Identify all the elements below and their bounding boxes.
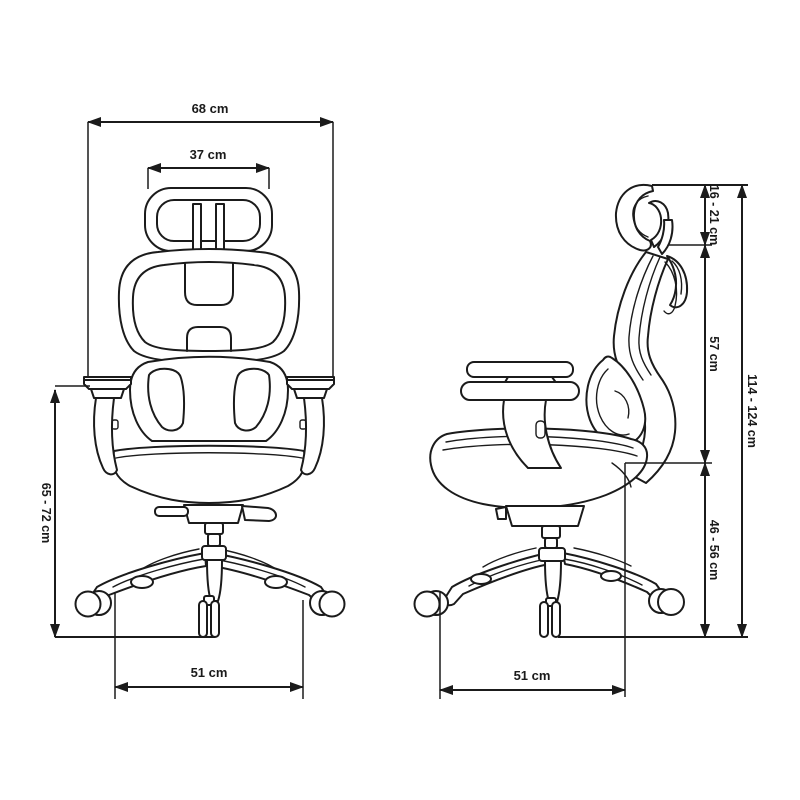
- base-leg-left: [445, 553, 549, 605]
- leg-foot-left: [471, 574, 491, 584]
- chair-dimension-diagram: 68 cm 37 cm 65 - 72 cm 51 cm 16 - 21 cm …: [0, 0, 800, 800]
- gas-cylinder-lower: [208, 534, 220, 546]
- label-backrest-height: 57 cm: [707, 336, 721, 371]
- headrest-outline: [616, 185, 653, 251]
- headrest-front: [145, 188, 272, 252]
- base-side: [415, 548, 685, 637]
- base-front: [76, 546, 345, 637]
- base-hub: [202, 546, 226, 560]
- adjust-lever-right: [242, 506, 276, 521]
- headrest-side: [616, 185, 673, 254]
- leg-foot-right: [601, 571, 621, 581]
- armrest-pad-base: [91, 389, 124, 398]
- front-caster-wheel: [552, 602, 560, 637]
- headrest-rail: [667, 256, 687, 307]
- label-front-base-width: 51 cm: [191, 665, 228, 680]
- leg-foot-left: [131, 576, 153, 588]
- front-caster-wheel: [211, 601, 219, 637]
- base-hub: [539, 548, 565, 561]
- armrest-pad: [84, 377, 131, 389]
- label-headrest-adjust-range: 16 - 21 cm: [707, 185, 721, 245]
- front-caster-wheel: [540, 602, 548, 637]
- headrest-strut: [216, 204, 224, 252]
- armrest-column: [301, 398, 324, 474]
- mechanism-front: [155, 505, 276, 546]
- label-side-base-depth: 51 cm: [514, 668, 551, 683]
- gas-cylinder: [205, 523, 223, 534]
- armrest-column: [94, 398, 117, 474]
- cylinder-column: [207, 560, 222, 601]
- caster-wheel-left: [76, 592, 101, 617]
- side-view-chair: [415, 185, 688, 637]
- label-overall-width: 68 cm: [192, 101, 229, 116]
- headrest-strut: [193, 204, 201, 252]
- mechanism-side: [496, 506, 584, 548]
- leg-foot-right: [265, 576, 287, 588]
- tilt-mechanism: [184, 505, 243, 523]
- armrest-pad-base: [294, 389, 327, 398]
- cylinder-column: [545, 561, 561, 602]
- label-headrest-width: 37 cm: [190, 147, 227, 162]
- armrest-pad: [287, 377, 334, 389]
- front-caster-wheel: [199, 601, 207, 637]
- armrest-pad-lower: [461, 382, 579, 400]
- label-armrest-height-range: 65 - 72 cm: [39, 483, 53, 543]
- mechanism-front-tab: [496, 507, 506, 519]
- label-seat-height-range: 46 - 56 cm: [707, 520, 721, 580]
- label-overall-height-range: 114 - 124 cm: [745, 374, 759, 448]
- front-view-chair: [76, 188, 345, 637]
- caster-wheel-right: [320, 592, 345, 617]
- lumbar-section-outline: [130, 357, 288, 441]
- caster-wheel-right: [658, 589, 684, 615]
- adjust-lever-left: [155, 507, 188, 516]
- armrest-pad-top: [467, 362, 573, 377]
- gas-cylinder-lower: [545, 538, 557, 548]
- seat-front: [113, 446, 305, 503]
- caster-wheel-left: [415, 592, 440, 617]
- backrest-front: [119, 249, 299, 441]
- gas-cylinder: [542, 526, 560, 538]
- tilt-mechanism: [506, 506, 584, 526]
